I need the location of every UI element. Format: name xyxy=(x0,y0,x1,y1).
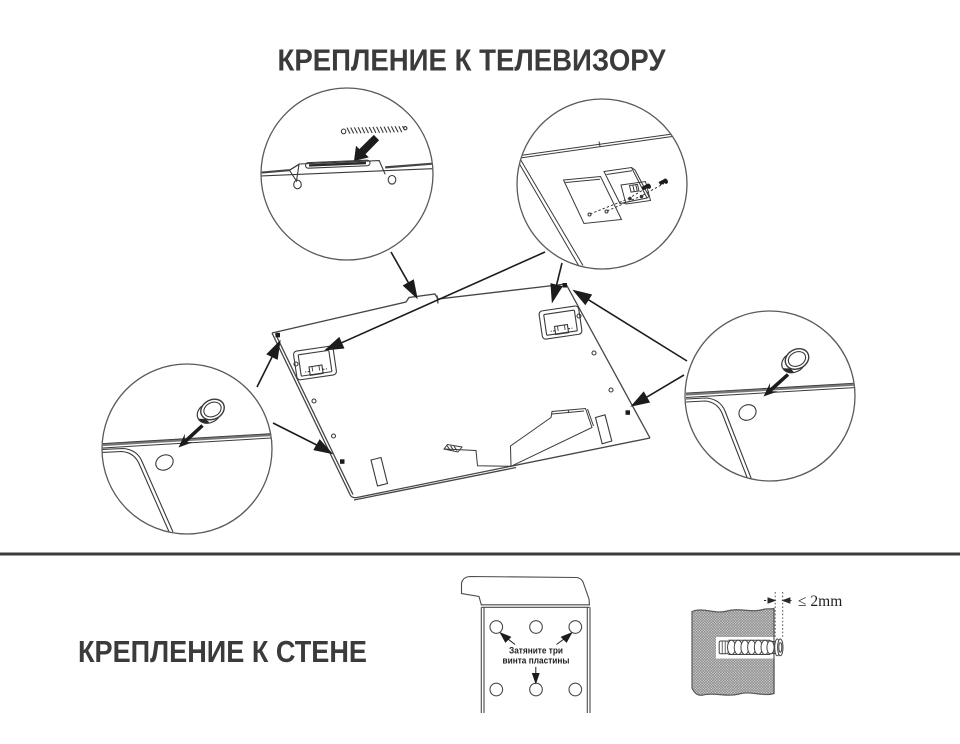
svg-text:винта пластины: винта пластины xyxy=(503,656,570,666)
svg-text:КРЕПЛЕНИЕ К ТЕЛЕВИЗОРУ: КРЕПЛЕНИЕ К ТЕЛЕВИЗОРУ xyxy=(278,43,667,78)
svg-text:Затяните три: Затяните три xyxy=(509,646,563,656)
svg-text:≤ 2mm: ≤ 2mm xyxy=(798,593,842,610)
svg-text:КРЕПЛЕНИЕ К СТЕНЕ: КРЕПЛЕНИЕ К СТЕНЕ xyxy=(78,634,367,669)
